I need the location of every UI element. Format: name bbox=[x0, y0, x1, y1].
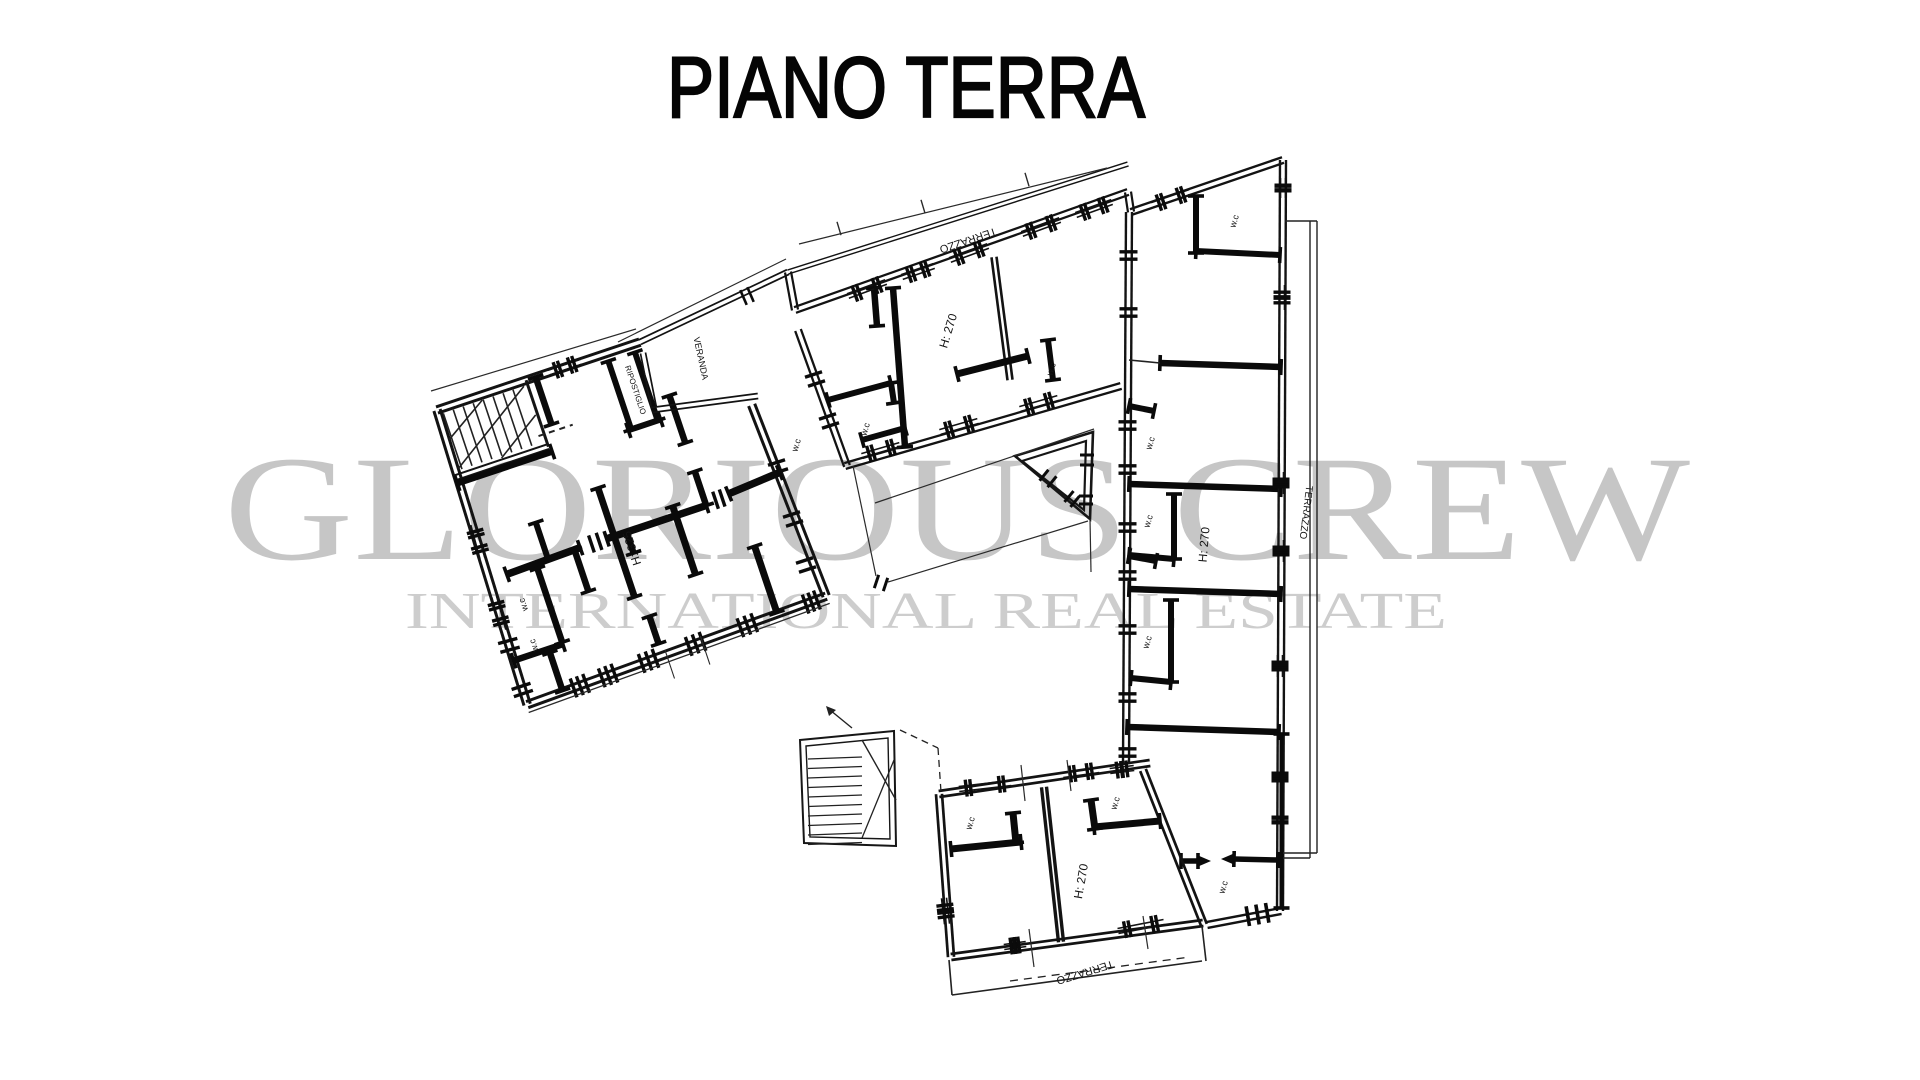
svg-text:GLORIOUS CREW: GLORIOUS CREW bbox=[224, 426, 1690, 592]
svg-text:PIANO TERRA: PIANO TERRA bbox=[667, 40, 1146, 136]
